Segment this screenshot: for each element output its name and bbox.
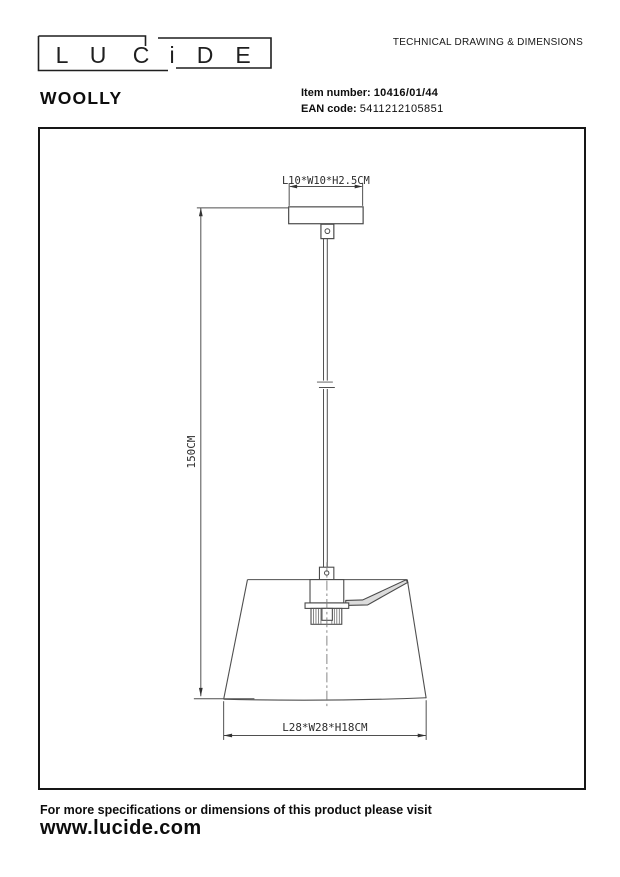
canopy-connector [321,224,334,238]
ceiling-canopy [289,207,363,224]
technical-drawing: L10*W10*H2.5CM 150CM L28*W28*H18CM [40,129,584,788]
cable-length-dimension-line [194,208,288,699]
item-number-row: Item number: 10416/01/44 [301,86,444,102]
ean-value: 5411212105851 [360,103,444,115]
logo-letter: D [197,42,214,68]
item-number-label: Item number: [301,87,371,99]
item-number-value: 10416/01/44 [374,87,438,99]
ean-row: EAN code: 5411212105851 [301,102,444,118]
footer-note: For more specifications or dimensions of… [40,803,432,817]
ean-label: EAN code: [301,103,357,115]
shade-bracket-arm [346,580,408,606]
logo-letter: C [133,42,150,68]
cable-length-label: 150CM [185,435,198,468]
doc-title: TECHNICAL DRAWING & DIMENSIONS [393,37,583,48]
logo-letter: i [169,42,174,68]
website-text: www.lucide.com [40,817,202,840]
technical-drawing-frame: L10*W10*H2.5CM 150CM L28*W28*H18CM [38,127,586,790]
logo-letter: L [56,42,69,68]
product-name: WOOLLY [40,88,122,109]
suspension-rod [324,239,328,568]
shade-dimension-label: L28*W28*H18CM [282,721,368,734]
product-codes: Item number: 10416/01/44 EAN code: 54112… [301,86,444,117]
rod-break [317,382,335,387]
logo-letter: U [90,42,107,68]
lucide-logo: L U C i D E [36,34,276,74]
spec-sheet-page: L U C i D E TECHNICAL DRAWING & DIMENSIO… [0,0,620,877]
logo-letter: E [235,42,250,68]
canopy-dimension-label: L10*W10*H2.5CM [282,175,370,187]
socket-thread [311,608,342,624]
